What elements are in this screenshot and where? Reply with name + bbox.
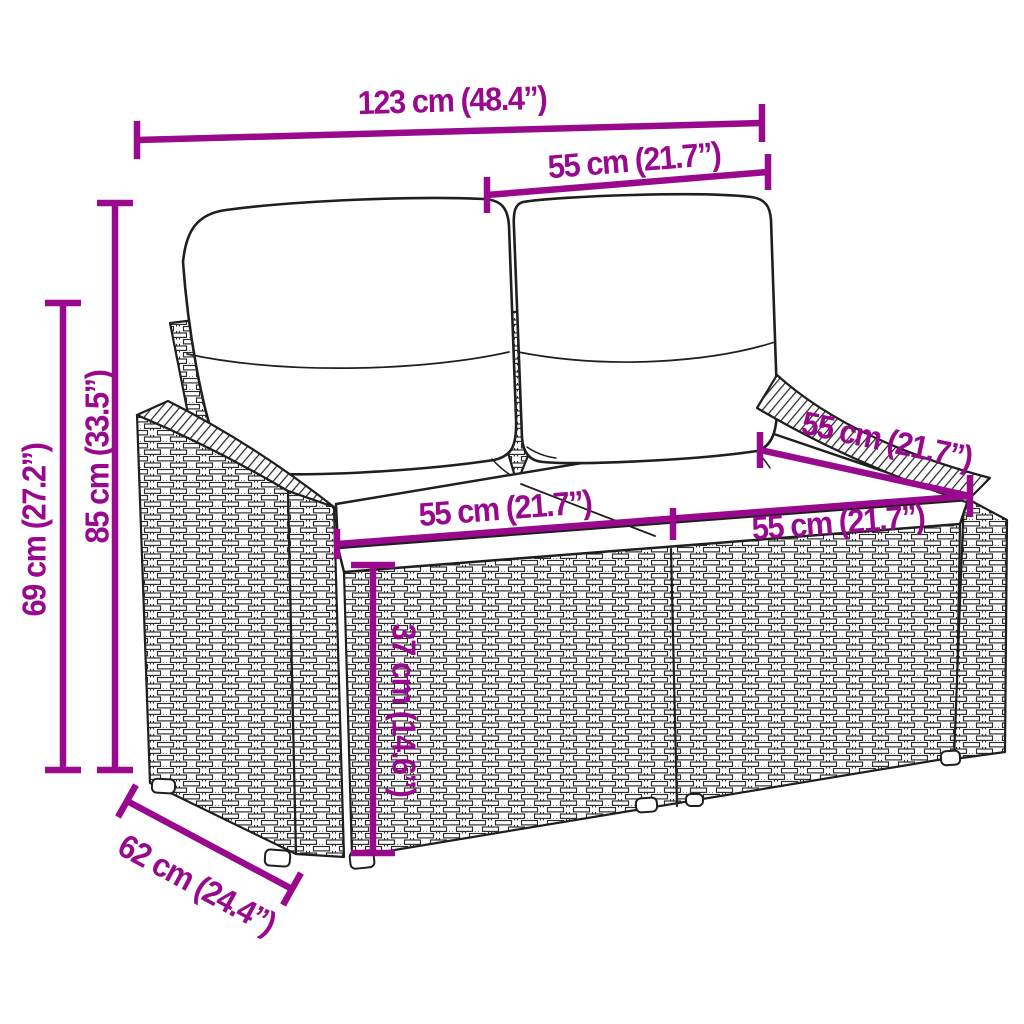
dimension-label-total-height: 85 cm (33.5”) <box>81 371 114 544</box>
back-cushion-right <box>514 194 777 463</box>
dimension-label-arm-height: 69 cm (27.2”) <box>18 444 51 617</box>
dimension-label-total-width: 123 cm (48.4”) <box>357 81 546 119</box>
dimension-label-seat-height: 37 cm (14.6”) <box>388 624 421 797</box>
back-cushion-left <box>183 198 516 474</box>
right-end-panel <box>954 497 1007 759</box>
product-dimension-diagram: 123 cm (48.4”) 55 cm (21.7”) 85 cm (33.5… <box>0 0 1024 1024</box>
